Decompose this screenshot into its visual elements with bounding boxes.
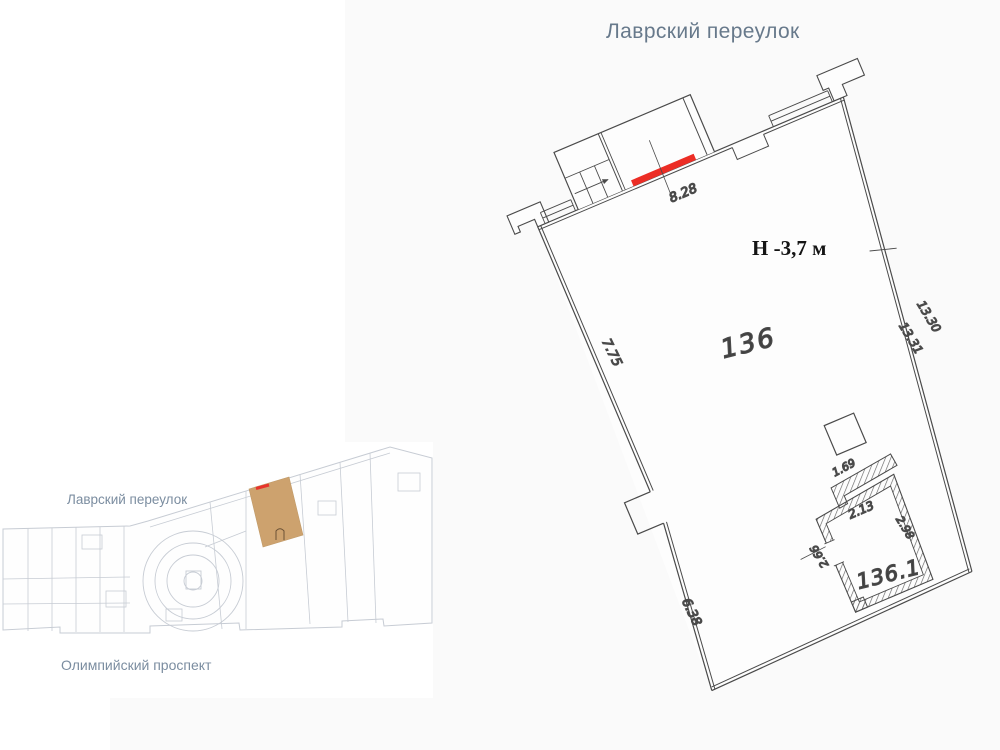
building-outline [3, 447, 432, 633]
minimap-street-bottom: Олимпийский проспект [61, 657, 211, 673]
ceiling-height-note: Н -3,7 м [752, 236, 872, 261]
street-title: Лаврский переулок [606, 20, 846, 44]
floor-plan-drawing: 8.28 7.75 6.38 13.30 13.31 1.69 2.13 2.9… [420, 50, 1000, 745]
corner-block-top-right [817, 58, 869, 103]
dim-right-outer: 13.30 [914, 298, 944, 335]
background-panel-top-left [0, 0, 345, 442]
minimap-street-top: Лаврский переулок [67, 492, 187, 507]
background-panel-bottom-left [0, 698, 110, 750]
